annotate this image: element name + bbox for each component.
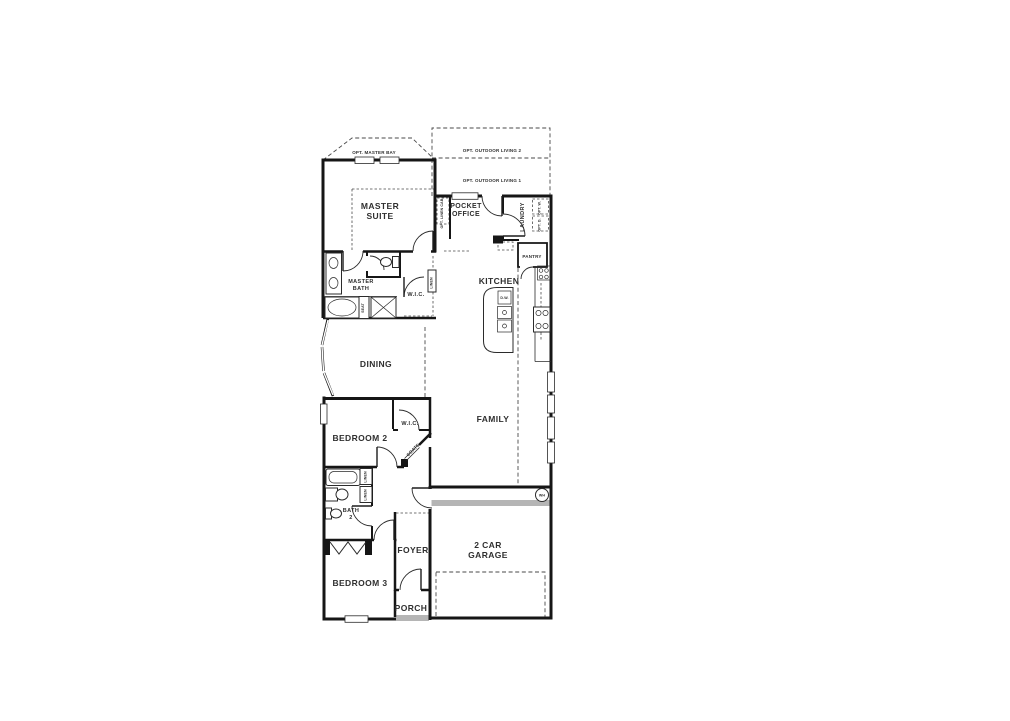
opt-outdoor-living-2-label: OPT. OUTDOOR LIVING 2 [463, 148, 522, 153]
master-bath-label-2: BATH [353, 286, 369, 292]
closet-stub-left [324, 541, 330, 555]
garage-step [432, 500, 550, 506]
master-wic-label: W.I.C. [407, 292, 424, 298]
coats-label: COATS [405, 442, 420, 457]
closet-stub-right [365, 541, 372, 555]
front-door-arc [400, 569, 421, 590]
opt-linen-cab-label: OPT. LINEN CAB. [440, 197, 444, 228]
pantry-door-arc [521, 267, 533, 279]
opt-master-bay-label: OPT. MASTER BAY [352, 150, 396, 155]
opt-outdoor-living-2-outline [432, 128, 550, 196]
family-window-2 [548, 395, 555, 413]
floor-plan-drawing: OPT. OUTDOOR LIVING 2 OPT. OUTDOOR LIVIN… [0, 0, 1010, 721]
opt-outdoor-living-1-label: OPT. OUTDOOR LIVING 1 [463, 178, 522, 183]
linen-hall-upper-label: LINEN [364, 471, 368, 483]
master-bath-fixtures [325, 253, 436, 319]
porch-label: PORCH [395, 603, 428, 613]
garage-door-area [436, 572, 545, 617]
master-window-1 [355, 157, 374, 164]
toilet-tank [393, 257, 400, 268]
wic2-door-arc [399, 410, 419, 430]
pocket-office-window [452, 193, 478, 200]
laundry-walls [494, 196, 519, 241]
seat-label: SEAT [361, 302, 365, 312]
opt-dryer-label: OPT. D. [538, 218, 542, 231]
vanity [326, 253, 342, 294]
bedroom2-door-arc [377, 447, 397, 467]
bath2-label-2: 2 [349, 515, 352, 521]
range-icon [534, 307, 551, 332]
laundry-label: LAUNDRY [520, 202, 526, 231]
fixtures [325, 253, 550, 519]
garage-label: 2 CAR [474, 540, 502, 550]
bedroom3-label: BEDROOM 3 [332, 578, 387, 588]
opt-washer-label: OPT. W. [538, 201, 542, 215]
pantry-label: PANTRY [522, 254, 541, 259]
burner-icon [545, 269, 549, 273]
linen-master-label: LINEN [430, 277, 434, 289]
bedroom3-bifold-doors [330, 542, 366, 554]
family-label: FAMILY [477, 414, 510, 424]
dining-bay-wall [322, 318, 333, 396]
labels: OPT. OUTDOOR LIVING 2 OPT. OUTDOOR LIVIN… [332, 148, 545, 613]
foyer-label: FOYER [397, 545, 428, 555]
family-window-3 [548, 417, 555, 439]
linen-hall-lower-label: LINEN [364, 489, 368, 501]
toilet-icon [381, 258, 392, 267]
bedroom3-window [345, 616, 368, 623]
pocket-office-label: POCKET [450, 203, 482, 210]
water-heater-label: WH [539, 494, 545, 498]
pocket-office-exterior-door-arc [482, 196, 502, 216]
wall-stub [493, 236, 503, 244]
kitchen-label: KITCHEN [479, 276, 520, 286]
master-suite-label-2: SUITE [366, 211, 393, 221]
coats-angled-wall [419, 433, 431, 445]
dishwasher-label: D.W. [500, 296, 508, 300]
tub [325, 297, 359, 318]
floor-plan-page: OPT. OUTDOOR LIVING 2 OPT. OUTDOOR LIVIN… [0, 0, 1010, 721]
opt-master-bay-outline [323, 138, 435, 160]
bath2-label: BATH [343, 508, 359, 514]
burner-icon [545, 275, 549, 279]
bedroom2-label: BEDROOM 2 [332, 433, 387, 443]
garage-label-2: GARAGE [468, 550, 508, 560]
bedroom2-window [321, 404, 328, 424]
dining-label: DINING [360, 359, 392, 369]
garage-entry-door-arc [412, 488, 432, 508]
pocket-office-label-2: OFFICE [452, 211, 480, 218]
wic2-label: W.I.C. [401, 421, 418, 427]
family-window-4 [548, 442, 555, 463]
porch-threshold [396, 615, 429, 621]
master-window-2 [380, 157, 399, 164]
master-bath-label: MASTER [348, 279, 374, 285]
master-suite-door-arc [413, 231, 433, 251]
master-suite-label: MASTER [361, 201, 399, 211]
master-bath-door-arc [343, 251, 363, 271]
burner-icon [539, 269, 543, 273]
burner-icon [539, 275, 543, 279]
family-window-1 [548, 372, 555, 392]
toilet-icon [331, 509, 342, 518]
bedroom3-door-arc [374, 520, 394, 540]
sink-icon [336, 489, 348, 500]
